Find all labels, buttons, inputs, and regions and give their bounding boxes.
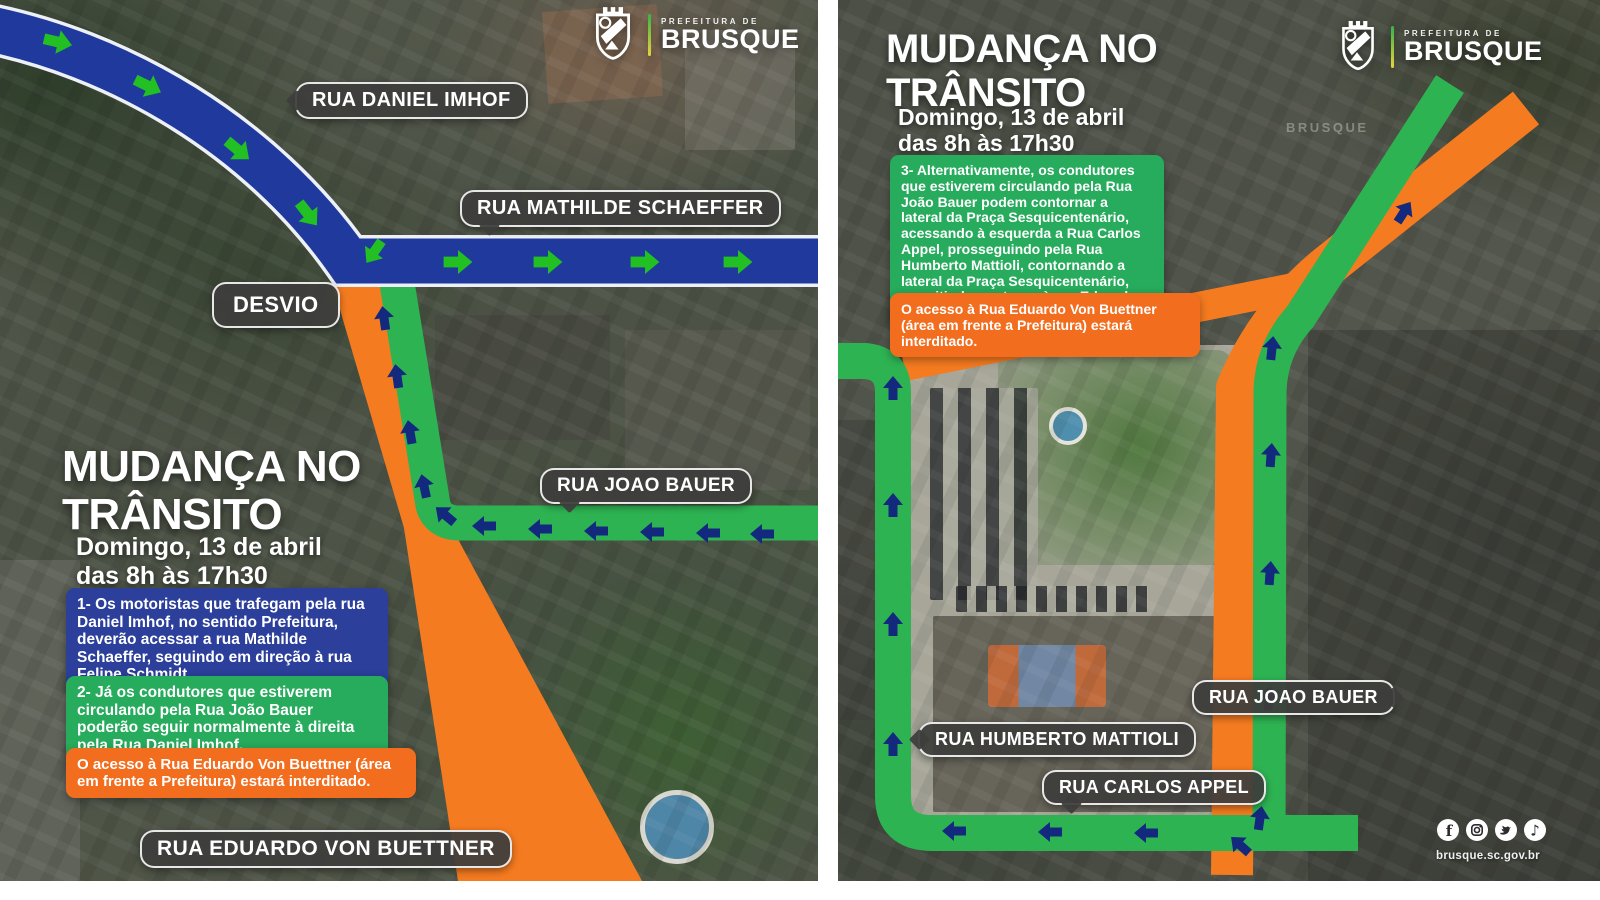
brusque-logo: PREFEITURA DE BRUSQUE [588,6,800,64]
poster-date-line1: Domingo, 13 de abril [898,104,1124,131]
svg-text:♪: ♪ [1530,822,1540,840]
street-label-humberto-mattioli: RUA HUMBERTO MATTIOLI [918,722,1196,757]
facebook-icon: f [1436,818,1460,842]
poster-date-line2: das 8h às 17h30 [76,562,268,591]
poster-date-line1: Domingo, 13 de abril [76,533,322,562]
street-label-eduardo-von-buettner: RUA EDUARDO VON BUETTNER [140,830,512,868]
poster-date-line2: das 8h às 17h30 [898,130,1074,157]
street-label-carlos-appel: RUA CARLOS APPEL [1042,770,1266,805]
traffic-change-posters: PREFEITURA DE BRUSQUE RUA DANIEL IMHOF R… [0,0,1600,900]
street-label-daniel-imhof: RUA DANIEL IMHOF [295,82,528,119]
logo-name: BRUSQUE [661,26,800,53]
brusque-logo: PREFEITURA DE BRUSQUE [1335,20,1543,74]
logo-small-text: PREFEITURA DE [1404,29,1543,38]
twitter-icon [1494,818,1518,842]
street-label-joao-bauer: RUA JOAO BAUER [1192,680,1395,715]
poster-left: PREFEITURA DE BRUSQUE RUA DANIEL IMHOF R… [0,0,818,881]
closure-notice-box: O acesso à Rua Eduardo Von Buettner (áre… [890,293,1200,357]
poster-title-line1: MUDANÇA NO [886,28,1157,70]
street-label-joao-bauer: RUA JOAO BAUER [540,468,752,504]
social-icons: f ♪ [1436,818,1547,842]
logo-divider [648,14,651,56]
city-crest-icon [588,6,638,64]
instagram-icon [1465,818,1489,842]
poster-title-line1: MUDANÇA NO [62,444,361,491]
logo-divider [1391,26,1394,68]
poster-title-line2: TRÂNSITO [62,492,282,539]
logo-small-text: PREFEITURA DE [661,17,800,26]
website-url: brusque.sc.gov.br [1436,850,1540,862]
map-watermark: BRUSQUE [1286,120,1369,135]
closure-notice-box: O acesso à Rua Eduardo Von Buettner (áre… [66,748,416,798]
logo-name: BRUSQUE [1404,38,1543,65]
city-crest-icon [1335,20,1381,74]
tiktok-icon: ♪ [1523,818,1547,842]
street-label-desvio: DESVIO [212,282,340,328]
poster-right: PREFEITURA DE BRUSQUE BRUSQUE MUDANÇA NO… [838,0,1600,881]
street-label-mathilde-schaeffer: RUA MATHILDE SCHAEFFER [460,190,781,227]
